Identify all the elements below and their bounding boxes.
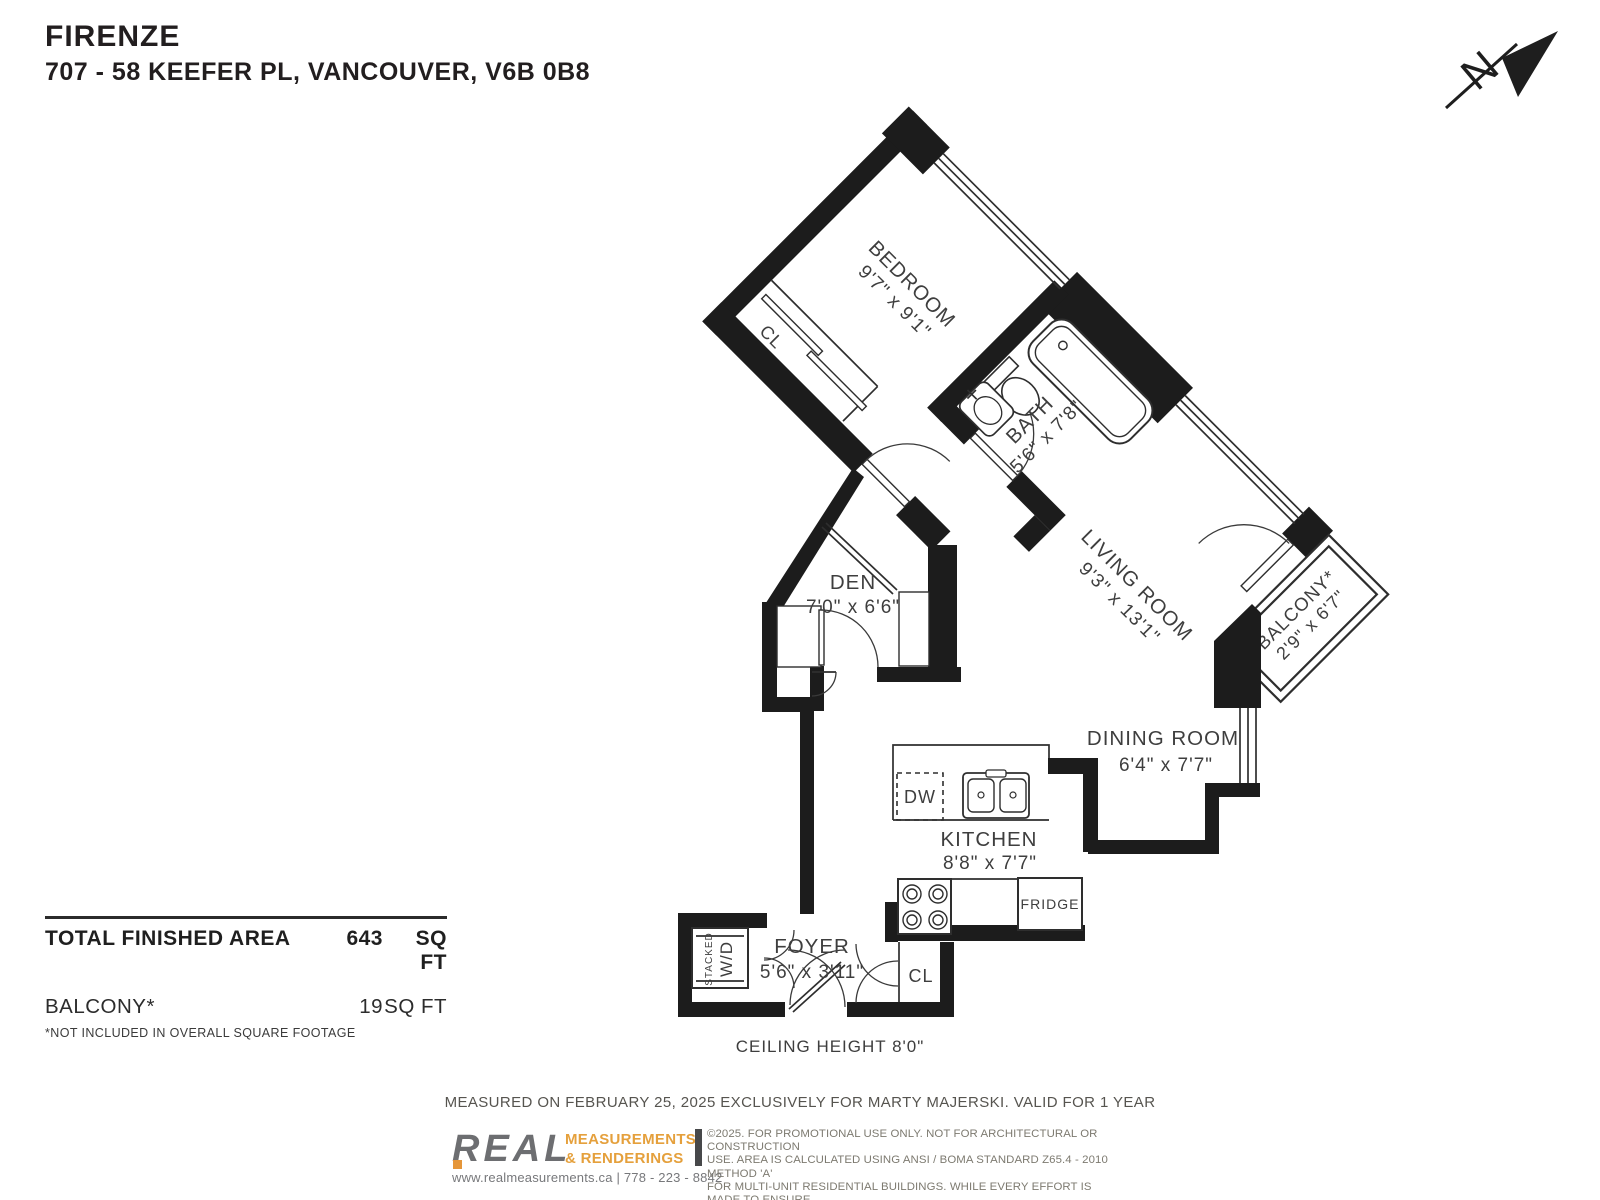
bedroom-window (934, 154, 1069, 289)
kitchen-dims: 8'8" x 7'7" (943, 853, 1037, 874)
total-area-value: 643 (329, 927, 383, 951)
balcony-area-value: 19 (329, 995, 383, 1019)
tagline-line1: MEASUREMENTS (565, 1130, 696, 1149)
disclaimer-line1: ©2025. FOR PROMOTIONAL USE ONLY. NOT FOR… (707, 1128, 1127, 1154)
dishwasher-label: DW (904, 787, 936, 807)
den-door (819, 610, 878, 667)
footer-divider (695, 1129, 702, 1166)
real-logo: REAL (452, 1128, 571, 1171)
den-label: DEN (830, 571, 876, 594)
diagonal-wing: CL (698, 105, 1394, 801)
living-window (1176, 396, 1304, 524)
brand-contact: www.realmeasurements.ca | 778 - 223 - 88… (452, 1170, 722, 1185)
total-area-label: TOTAL FINISHED AREA (45, 927, 329, 951)
dining-room-label: DINING ROOM (1087, 727, 1239, 750)
foyer-closet-label: CL (908, 966, 933, 986)
floorplan-page: FIRENZE 707 - 58 KEEFER PL, VANCOUVER, V… (0, 0, 1600, 1200)
kitchen-label: KITCHEN (941, 828, 1038, 851)
svg-text:W/D: W/D (717, 941, 736, 977)
ceiling-height-note: CEILING HEIGHT 8'0" (736, 1037, 925, 1056)
balcony-door (1199, 497, 1294, 592)
measured-note: MEASURED ON FEBRUARY 25, 2025 EXCLUSIVEL… (0, 1094, 1600, 1111)
kitchen-sink (963, 770, 1029, 818)
tagline-line2: & RENDERINGS (565, 1149, 696, 1168)
area-footnote: *NOT INCLUDED IN OVERALL SQUARE FOOTAGE (45, 1026, 447, 1040)
foyer-dims: 5'6" x 3'11" (760, 962, 864, 983)
total-area-unit: SQ FT (383, 927, 447, 975)
logo-orange-square-icon (453, 1160, 462, 1169)
disclaimer-line2: USE. AREA IS CALCULATED USING ANSI / BOM… (707, 1154, 1127, 1180)
den-dims: 7'0" x 6'6" (806, 597, 900, 618)
dining-room-dims: 6'4" x 7'7" (1119, 755, 1213, 776)
summary-rule (45, 916, 447, 919)
svg-text:STACKED: STACKED (704, 932, 715, 986)
fridge-label: FRIDGE (1021, 896, 1080, 912)
balcony-area-label: BALCONY* (45, 995, 329, 1019)
total-area-row: TOTAL FINISHED AREA 643 SQ FT (45, 927, 447, 975)
balcony-area-unit: SQ FT (383, 995, 447, 1019)
logo-tagline: MEASUREMENTS & RENDERINGS (565, 1130, 696, 1168)
stove (898, 879, 951, 934)
den-niche (899, 592, 929, 666)
dining-window (1240, 708, 1256, 783)
area-summary: TOTAL FINISHED AREA 643 SQ FT BALCONY* 1… (45, 916, 447, 1040)
north-label: N (1452, 42, 1508, 100)
disclaimer: ©2025. FOR PROMOTIONAL USE ONLY. NOT FOR… (707, 1128, 1127, 1200)
balcony-pillar (1214, 604, 1261, 708)
foyer-label: FOYER (774, 935, 850, 958)
balcony-area-row: BALCONY* 19 SQ FT (45, 995, 447, 1019)
disclaimer-line3: FOR MULTI-UNIT RESIDENTIAL BUILDINGS. WH… (707, 1181, 1127, 1200)
bedroom-door (862, 419, 950, 507)
north-arrow-icon: N (1446, 31, 1558, 108)
